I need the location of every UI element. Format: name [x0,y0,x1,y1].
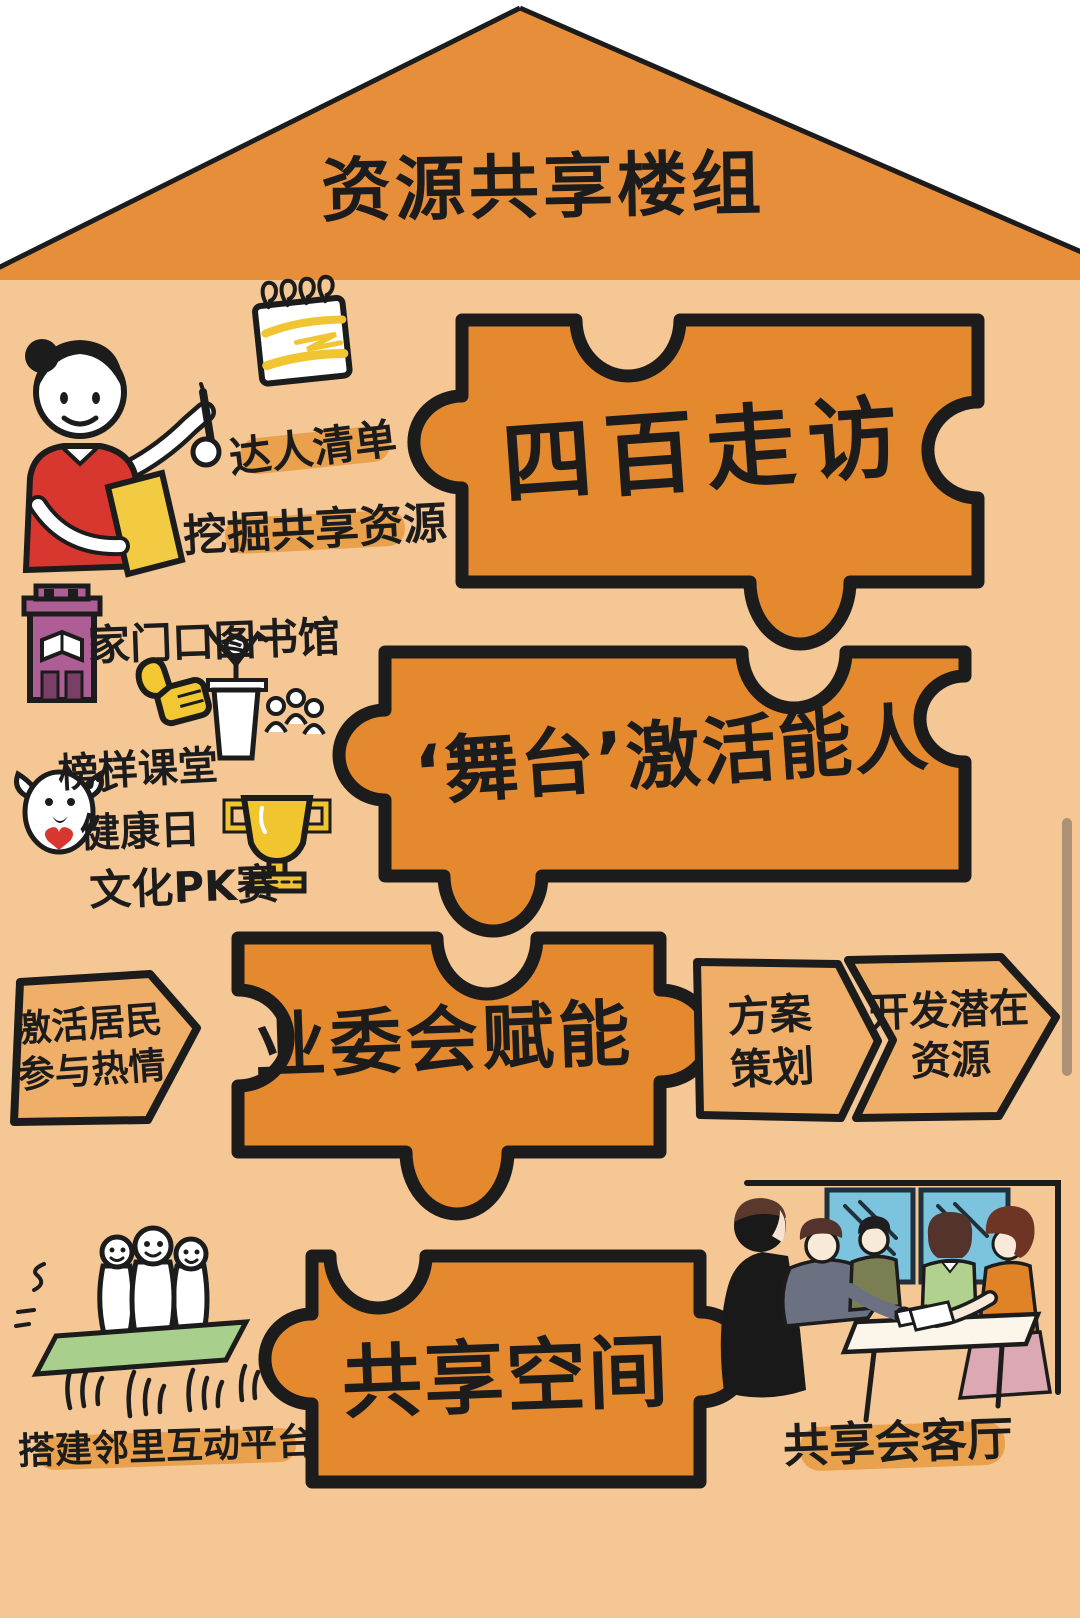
meeting-scene-illustration [721,1183,1058,1420]
scrollbar-thumb[interactable] [1062,818,1072,1076]
library-label: 家门口图书馆 [87,611,341,672]
arrow-develop-line1: 开发潜在 [868,983,1030,1039]
poster-title: 资源共享楼组 [320,140,765,235]
puzzle-4-label: 共享空间 [340,1322,671,1433]
health-day-label: 健康日 [79,805,201,859]
model-class-label: 榜样课堂 [57,741,219,799]
notepad-icon [252,275,350,384]
green-platform-icon [36,1322,246,1374]
arrow-plan-line1: 方案 [726,987,813,1044]
arrow-left-label: 激活居民 参与热情 [13,997,167,1100]
poster-canvas: 资源共享楼组 四百走访 ‘舞台’激活能人 业委会赋能 共享空间 激活居民 参与热… [0,0,1080,1618]
audience-icon [266,690,324,734]
reception-label: 共享会客厅 [782,1410,1014,1475]
platform-people-icon [16,1228,258,1416]
lifting-hands-icon [67,1366,258,1416]
arrow-develop-line2: 资源 [870,1033,1032,1089]
arrow-develop-label: 开发潜在 资源 [868,983,1031,1089]
puzzle-3-label: 业委会赋能 [253,988,636,1091]
arrow-plan-line2: 策划 [729,1040,816,1097]
culture-pk-label: 文化PK赛 [88,858,279,917]
arrow-plan-label: 方案 策划 [726,987,815,1096]
